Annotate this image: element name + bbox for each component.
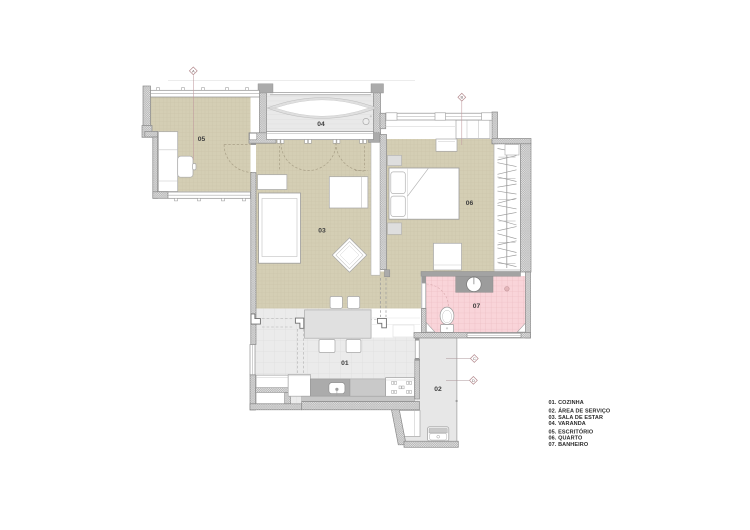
svg-text:04: 04 <box>317 121 325 128</box>
svg-text:05: 05 <box>198 136 206 143</box>
svg-text:07: 07 <box>473 303 481 310</box>
svg-text:03. SALA DE ESTAR: 03. SALA DE ESTAR <box>549 415 604 421</box>
svg-text:02: 02 <box>434 386 442 393</box>
svg-text:D: D <box>472 378 475 383</box>
svg-text:01. COZINHA: 01. COZINHA <box>549 400 584 406</box>
svg-text:06: 06 <box>466 200 474 207</box>
svg-text:06. QUARTO: 06. QUARTO <box>549 436 584 442</box>
svg-text:C: C <box>473 356 476 361</box>
svg-text:03: 03 <box>318 227 326 234</box>
svg-text:02. ÁREA DE SERVIÇO: 02. ÁREA DE SERVIÇO <box>549 408 611 415</box>
svg-text:B: B <box>460 95 463 100</box>
svg-text:07. BANHEIRO: 07. BANHEIRO <box>549 442 589 448</box>
svg-text:05. ESCRITÓRIO: 05. ESCRITÓRIO <box>549 427 594 435</box>
svg-text:A: A <box>192 68 195 73</box>
svg-text:04. VARANDA: 04. VARANDA <box>549 421 586 427</box>
svg-text:01: 01 <box>341 360 349 367</box>
